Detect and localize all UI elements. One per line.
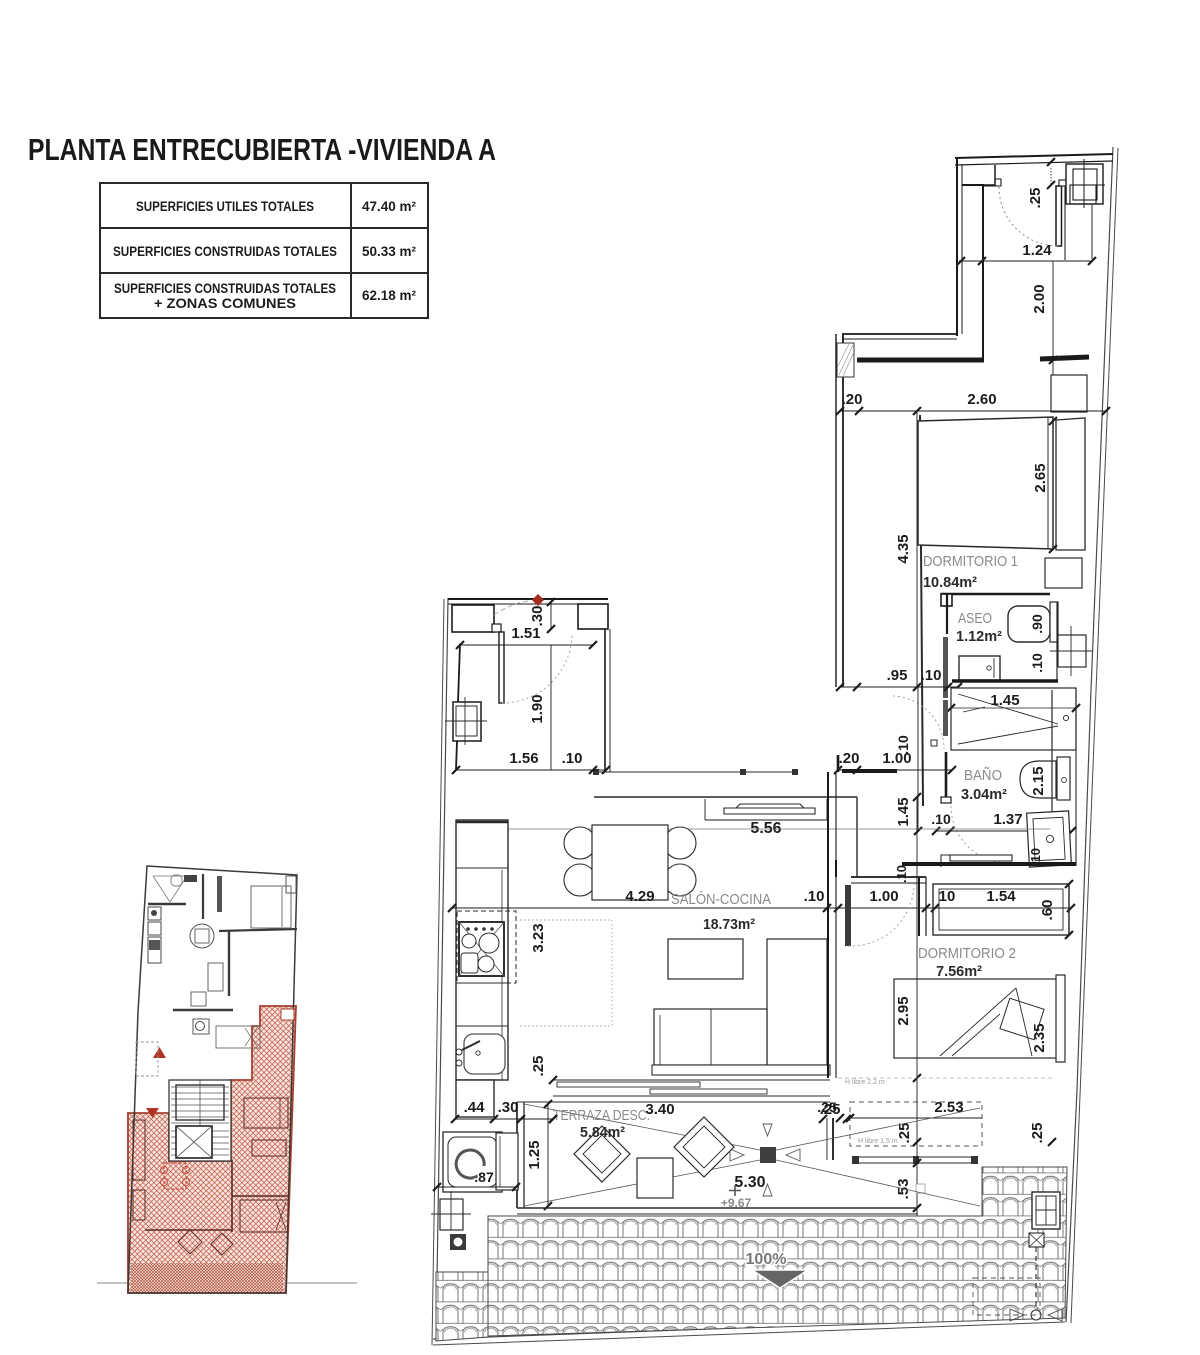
svg-text:+ ZONAS COMUNES: + ZONAS COMUNES (154, 296, 296, 311)
svg-text:1.00: 1.00 (869, 888, 898, 905)
svg-text:.20: .20 (842, 391, 863, 408)
svg-text:.60: .60 (1039, 900, 1056, 921)
svg-text:1.12m²: 1.12m² (956, 629, 1002, 645)
svg-text:.25: .25 (1029, 1123, 1046, 1144)
svg-text:.25: .25 (530, 1056, 547, 1077)
svg-text:1.45: 1.45 (895, 797, 912, 826)
svg-text:62.18 m²: 62.18 m² (362, 288, 417, 303)
svg-text:1.56: 1.56 (509, 750, 538, 767)
svg-text:.10: .10 (1029, 653, 1045, 673)
svg-text:.30: .30 (498, 1099, 519, 1116)
svg-text:2.00: 2.00 (1031, 284, 1048, 313)
svg-text:.10: .10 (804, 888, 825, 905)
svg-text:1.45: 1.45 (990, 692, 1019, 709)
svg-text:.10: .10 (931, 811, 951, 827)
svg-text:1.54: 1.54 (986, 888, 1016, 905)
svg-text:SUPERFICIES UTILES TOTALES: SUPERFICIES UTILES TOTALES (136, 199, 314, 214)
svg-text:H libre 2.2 m: H libre 2.2 m (845, 1079, 885, 1086)
svg-text:5.84m²: 5.84m² (580, 1124, 625, 1141)
svg-text:.25: .25 (820, 1101, 841, 1118)
svg-text:10: 10 (939, 888, 956, 905)
svg-text:BAÑO: BAÑO (964, 767, 1002, 784)
svg-text:3.04m²: 3.04m² (961, 787, 1007, 803)
svg-text:.25: .25 (896, 1123, 913, 1144)
svg-text:4.35: 4.35 (895, 534, 912, 563)
svg-text:ASEO: ASEO (958, 611, 992, 627)
svg-text:18.73m²: 18.73m² (703, 916, 755, 933)
svg-text:1.51: 1.51 (511, 625, 540, 642)
svg-text:SALÓN-COCINA: SALÓN-COCINA (671, 891, 771, 908)
svg-text:100%: 100% (746, 1251, 787, 1268)
svg-text:.10: .10 (921, 667, 942, 684)
svg-text:1.25: 1.25 (526, 1140, 543, 1169)
svg-text:1.90: 1.90 (529, 694, 546, 723)
svg-text:DORMITORIO 2: DORMITORIO 2 (918, 945, 1016, 962)
svg-text:.90: .90 (1029, 614, 1045, 634)
svg-text:4.29: 4.29 (625, 888, 654, 905)
svg-text:47.40 m²: 47.40 m² (362, 199, 417, 214)
svg-text:SUPERFICIES CONSTRUIDAS TOTALE: SUPERFICIES CONSTRUIDAS TOTALES (114, 281, 336, 296)
svg-text:2.65: 2.65 (1032, 463, 1049, 492)
svg-text:.20: .20 (839, 750, 860, 767)
svg-text:TERRAZA DESC.: TERRAZA DESC. (553, 1107, 650, 1124)
svg-text:.44: .44 (464, 1099, 486, 1116)
svg-text:2.53: 2.53 (934, 1099, 963, 1116)
svg-text:5.56: 5.56 (750, 820, 781, 837)
svg-text:2.95: 2.95 (895, 996, 912, 1025)
svg-text:5.30: 5.30 (734, 1174, 765, 1191)
svg-text:PLANTA ENTRECUBIERTA -VIVIENDA: PLANTA ENTRECUBIERTA -VIVIENDA A (28, 132, 496, 167)
svg-text:H libre 1.5 m: H libre 1.5 m (858, 1138, 898, 1145)
svg-text:3.40: 3.40 (645, 1101, 674, 1118)
svg-text:2.15: 2.15 (1030, 766, 1047, 795)
svg-text:.25: .25 (1027, 188, 1044, 209)
svg-text:3.23: 3.23 (530, 923, 547, 952)
svg-text:2.35: 2.35 (1031, 1023, 1048, 1052)
svg-text:2.60: 2.60 (967, 391, 996, 408)
svg-text:10.84m²: 10.84m² (923, 574, 977, 591)
svg-text:.10: .10 (894, 865, 909, 883)
svg-text:.30: .30 (529, 606, 546, 627)
svg-text:DORMITORIO 1: DORMITORIO 1 (923, 553, 1018, 570)
svg-text:1.37: 1.37 (993, 811, 1022, 828)
svg-text:1.00: 1.00 (882, 750, 911, 767)
svg-text:.10: .10 (562, 750, 583, 767)
svg-text:1.24: 1.24 (1022, 242, 1052, 259)
svg-text:SUPERFICIES CONSTRUIDAS TOTALE: SUPERFICIES CONSTRUIDAS TOTALES (113, 244, 337, 259)
svg-text:.87: .87 (474, 1169, 494, 1185)
svg-text:50.33 m²: 50.33 m² (362, 244, 417, 259)
svg-text:7.56m²: 7.56m² (936, 963, 982, 980)
svg-text:.95: .95 (887, 667, 908, 684)
